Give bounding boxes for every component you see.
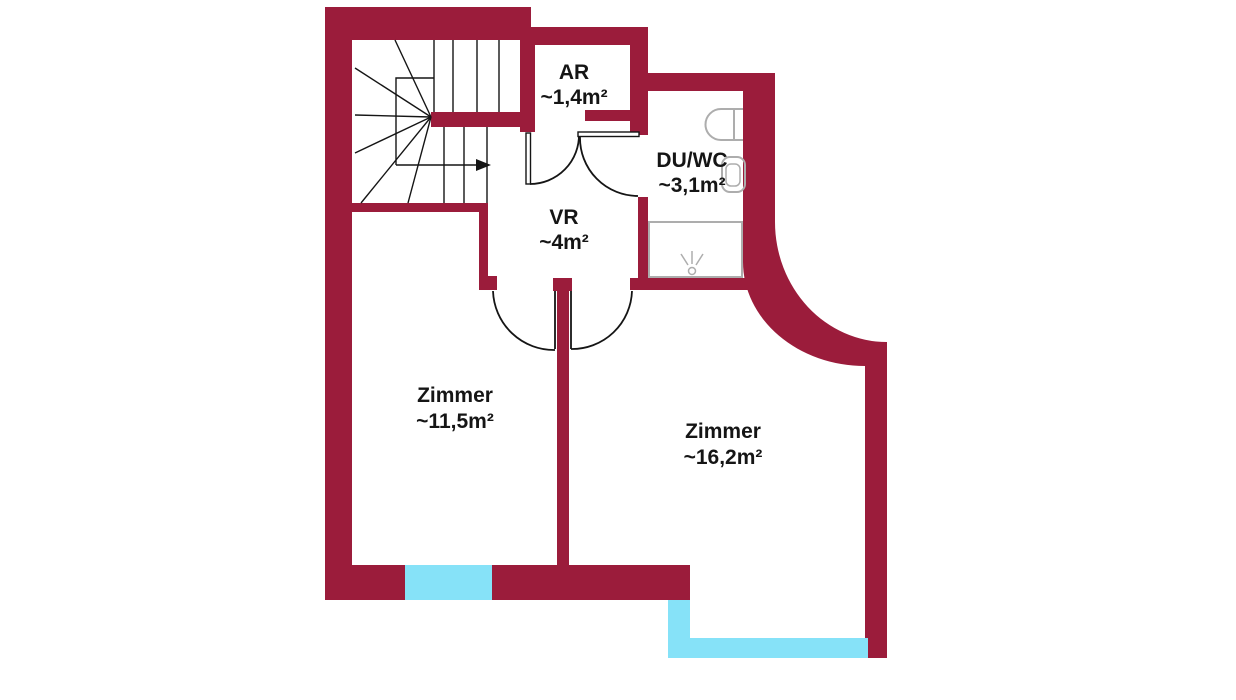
- wall-stair-storage-divider: [520, 40, 535, 132]
- toilet-icon: [706, 109, 744, 140]
- bath-door-leaf: [578, 132, 639, 137]
- storage-door-arc: [530, 134, 579, 184]
- wall-stair-bottom: [348, 203, 488, 212]
- wall-room-divider: [557, 278, 569, 600]
- window-corner-vertical: [668, 600, 690, 658]
- window-bottom-right: [690, 638, 868, 658]
- bath-door-arc: [580, 137, 638, 196]
- room-left-door-arc: [493, 291, 555, 350]
- wall-vestibule-left-jamb: [479, 276, 497, 290]
- wall-left-exterior: [325, 7, 352, 600]
- room-right-door-arc: [571, 291, 632, 349]
- shower-spray-line: [696, 254, 703, 265]
- vestibule-area-label: ~4m²: [539, 231, 589, 254]
- wall-bath-top: [648, 73, 775, 91]
- storage-name-label: AR: [559, 61, 589, 84]
- shower-spray-line: [681, 254, 688, 265]
- shower-head-icon: [689, 268, 696, 275]
- wall-bath-bottom: [630, 278, 768, 290]
- wall-top-left: [325, 7, 531, 40]
- wall-bottom-mid: [492, 565, 690, 600]
- room-right-name-label: Zimmer: [685, 420, 761, 443]
- room-right-area-label: ~16,2m²: [684, 446, 763, 469]
- wall-vestibule-left: [479, 203, 488, 278]
- bathroom-name-label: DU/WC: [656, 149, 727, 172]
- wall-bath-left-lower: [638, 197, 648, 290]
- sink-icon-basin: [726, 164, 740, 186]
- floor-plan-canvas: AR ~1,4m² DU/WC ~3,1m² VR ~4m² Zimmer ~1…: [0, 0, 1236, 700]
- wall-bath-right: [743, 91, 775, 225]
- wall-stair-mid-rail: [431, 112, 521, 127]
- room-left-name-label: Zimmer: [417, 384, 493, 407]
- vestibule-name-label: VR: [549, 206, 578, 229]
- room-left-area-label: ~11,5m²: [416, 410, 494, 433]
- storage-door-leaf: [526, 133, 531, 184]
- wall-right-exterior: [865, 342, 887, 658]
- wall-storage-bottom: [585, 110, 630, 121]
- stair-direction-arrow-icon: [476, 159, 491, 171]
- wall-bottom-left: [325, 565, 405, 600]
- bathroom-area-label: ~3,1m²: [658, 174, 725, 197]
- stair-winder-line: [355, 115, 431, 117]
- floor-plan: AR ~1,4m² DU/WC ~3,1m² VR ~4m² Zimmer ~1…: [0, 0, 1236, 700]
- storage-area-label: ~1,4m²: [540, 86, 607, 109]
- window-bottom-left: [405, 565, 492, 600]
- stair-winder-line: [355, 117, 431, 153]
- wall-storage-bath-divider: [630, 27, 648, 135]
- stair-winder-line: [408, 117, 431, 203]
